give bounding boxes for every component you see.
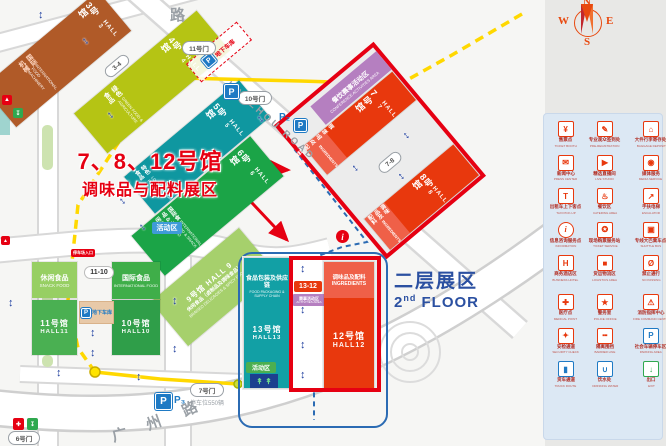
legend-item: P社会车辆停车区PARKING AREA (627, 328, 666, 355)
legend-label-en: TICKET SERVICE (593, 245, 618, 248)
compass-e: E (606, 15, 613, 27)
parking-p3-label: P₃ (174, 395, 185, 406)
legend-label-en: PARKING AREA (640, 351, 662, 354)
legend-icon: ⚠ (643, 294, 659, 310)
direction-arrow: ↕ (136, 372, 142, 383)
legend-label-en: MEDICAL POINT (554, 317, 577, 320)
legend-label-en: PRESS CENTER (554, 178, 577, 181)
legend-icon: ▶ (597, 155, 613, 171)
legend-icon: ∪ (597, 361, 613, 377)
parking-icon-p2: P (294, 119, 307, 132)
legend-item: T出租车上下客点TAXI PICK-UP (548, 188, 583, 215)
legend-icon: ◉ (643, 155, 659, 171)
legend-item: ■货运物流区LOGISTICS AREA (585, 255, 624, 287)
legend-label-en: FIRE COMMAND CENTER (633, 317, 666, 320)
legend-panel: ¥售票点TICKET BOOTH✎专业观众签到处PRE-REGISTRATION… (543, 113, 663, 440)
legend-label-en: LOGISTICS AREA (592, 278, 617, 281)
compass-w: W (558, 15, 569, 27)
legend-label-en: TRUCK ROUTE (555, 384, 577, 387)
legend-item: Ø禁止通行NO PASSING (627, 255, 666, 287)
legend-icon: ↗ (643, 188, 659, 204)
legend-label-cn: 禁止通行 (642, 272, 660, 277)
direction-arrow: ↕ (56, 368, 62, 379)
direction-arrow: ↕ (90, 348, 96, 359)
parking-p2-label: P₂ (279, 112, 290, 123)
exit-icon: ↧ (27, 418, 38, 430)
legend-icon: ♨ (597, 188, 613, 204)
gate-6: 6号门 (8, 431, 40, 445)
legend-item: ↗手扶电梯ESCALATOR (627, 188, 666, 215)
underground-parking-block: P 地下车库 (79, 301, 114, 324)
legend-item: ▮货车通道TRUCK ROUTE (548, 361, 583, 388)
underground-parking-label2: 地下车库 (92, 309, 112, 316)
legend-label-cn: 货车通道 (557, 378, 575, 383)
legend-label-en: TICKET BOOTH (555, 144, 577, 147)
legend-label-cn: 手扶电梯 (642, 205, 660, 210)
map-canvas: 国际机械 INTERNATIONAL FOOD MACHINERY 3号馆 HA… (0, 0, 545, 446)
legend-item: ⚠消防指挥中心FIRE COMMAND CENTER (627, 294, 666, 321)
legend-label-en: BAGGAGE DEPOSIT (636, 144, 665, 147)
zone-title-line2: 调味品与配料展区 (60, 176, 240, 200)
parking-p3-note: 停车位550辆 (190, 398, 224, 407)
legend-label-cn: 医疗点 (559, 311, 573, 316)
international-food-en: INTERNATIONAL FOOD (114, 283, 158, 288)
legend-label-cn: 消防指挥中心 (637, 311, 664, 316)
entrance-canopy: ↟ ↟ (250, 374, 278, 388)
direction-arrow: ↕ (8, 298, 14, 309)
legend-label-en: BUSINESS HOTEL (553, 278, 579, 281)
legend-label-cn: 警务室 (598, 311, 612, 316)
legend-item: H商务酒店区BUSINESS HOTEL (548, 255, 583, 287)
snack-food-en: SNACK FOOD (40, 283, 70, 288)
hall-11-name: 11号馆 (40, 320, 68, 329)
legend-label-en: INFORMATION (555, 245, 576, 248)
legend-item: ▣专线大巴乘车点SHUTTLE BUS (627, 222, 666, 249)
legend-icon: ▮ (558, 361, 574, 377)
hall-13-name: 13号馆 (253, 326, 282, 335)
legend-label-cn: 商务酒店区 (554, 272, 577, 277)
legend-icon: i (558, 222, 574, 238)
activity-area-badge-blue: 活动区 (152, 222, 182, 234)
legend-icon: ✚ (558, 294, 574, 310)
hall-13-code: HALL13 (253, 335, 282, 341)
direction-arrow: ↕ (396, 171, 407, 183)
legend-item: ♨餐饮区CATERING AREA (585, 188, 624, 215)
legend-icon: ✉ (558, 155, 574, 171)
direction-arrow: ↕ (401, 130, 412, 142)
legend-item: ⌂大件行李寄存处BAGGAGE DEPOSIT (627, 121, 666, 148)
legend-icon: ■ (597, 255, 613, 271)
parking-icon-p3: P (155, 393, 172, 410)
legend-label-en: BARRIER LINE (594, 351, 615, 354)
hall-13-category-en: FOOD PACKAGING & SUPPLY CHAIN (244, 290, 290, 298)
legend-item: ✚医疗点MEDICAL POINT (548, 294, 583, 321)
exit-icon: ▲ (2, 95, 12, 105)
activity-area-badge-green: 活动区 (246, 362, 276, 373)
legend-label-cn: 大件行李寄存处 (635, 138, 666, 143)
legend-label-en: SHUTTLE BUS (641, 245, 662, 248)
hall-13-category: 食品包装及供应链 (244, 276, 290, 290)
gate-11-10: 11-10 (84, 266, 114, 279)
legend-label-en: CATERING AREA (593, 211, 617, 214)
second-floor-cn: 二层展区 (394, 266, 479, 293)
legend-item: ★警务室POLICE OFFICE (585, 294, 624, 321)
legend-label-cn: 专业观众签到处 (589, 138, 621, 143)
direction-arrow: ↕ (350, 162, 361, 174)
hall-11-code: HALL11 (40, 329, 68, 335)
hall-10: 10号馆 HALL10 (112, 300, 160, 355)
legend-icon: ¥ (558, 121, 574, 137)
legend-item: ↓出口EXIT (627, 361, 666, 388)
legend-icon: ✪ (597, 222, 613, 238)
legend-item: ✪现场购票服务站TICKET SERVICE (585, 222, 624, 249)
direction-arrow: ↕ (90, 328, 96, 339)
hall-10-name: 10号馆 (122, 320, 151, 329)
direction-arrow: ↕ (172, 296, 178, 307)
legend-label-en: TAXI PICK-UP (556, 211, 575, 214)
legend-label-en: POLICE OFFICE (593, 317, 616, 320)
legend-icon: Ø (643, 255, 659, 271)
legend-item: ◉媒体服务MEDIA SERVICE (627, 155, 666, 182)
legend-icon: P (643, 328, 659, 344)
legend-label-en: EXIT (648, 384, 655, 387)
compass-s: S (584, 36, 590, 48)
compass-n: N (583, 0, 591, 8)
legend-icon: ✎ (597, 121, 613, 137)
gate-10: 10号门 (238, 91, 272, 105)
gate-7: 7号门 (190, 383, 224, 397)
legend-label-en: PRE-REGISTRATION (590, 144, 619, 147)
international-food-block: 国际食品 INTERNATIONAL FOOD (112, 262, 160, 299)
legend-item: ╍隔离围挡BARRIER LINE (585, 328, 624, 355)
snack-food-cn: 休闲食品 (41, 273, 69, 283)
zone-title: 7、8、12号馆 调味品与配料展区 (60, 144, 240, 200)
zone-title-line1: 7、8、12号馆 (60, 144, 240, 176)
legend-label-cn: 餐饮区 (598, 205, 612, 210)
legend-icon: T (558, 188, 574, 204)
legend-item: ✦安检通道SECURITY CHECK (548, 328, 583, 355)
second-floor-en: 2nd FLOOR (394, 293, 479, 311)
legend-icon: ★ (597, 294, 613, 310)
legend-label-en: MEDIA SERVICE (639, 178, 662, 181)
legend-item: i信息咨询服务点INFORMATION (548, 222, 583, 249)
direction-arrow: ↕ (38, 10, 44, 21)
legend-icon: ✦ (558, 328, 574, 344)
legend-label-en: DRINKING WATER (592, 384, 618, 387)
legend-grid: ¥售票点TICKET BOOTH✎专业观众签到处PRE-REGISTRATION… (548, 121, 658, 388)
legend-icon: ⌂ (643, 121, 659, 137)
legend-label-cn: 售票点 (559, 138, 573, 143)
road-name-top: 路 (170, 4, 185, 25)
hall-10-code: HALL10 (122, 329, 151, 335)
parking-icon-p1: P (224, 84, 239, 99)
compass: N W E S (552, 0, 622, 52)
legend-icon: ╍ (597, 328, 613, 344)
legend-label-en: ESCALATOR (642, 211, 660, 214)
snack-food-block: 休闲食品 SNACK FOOD (32, 262, 77, 298)
legend-icon: ↓ (643, 361, 659, 377)
exit-icon: ✚ (13, 418, 24, 430)
legend-label-cn: 出口 (646, 378, 655, 383)
legend-label-en: NO PASSING (642, 278, 660, 281)
parking-icon: P (81, 308, 91, 318)
direction-arrow: ↕ (172, 344, 178, 355)
legend-icon: H (558, 255, 574, 271)
second-floor-label: 二层展区 2nd FLOOR (394, 266, 479, 311)
legend-label-en: SECURITY CHECK (552, 351, 578, 354)
legend-icon: ▣ (643, 222, 659, 238)
halls-12-13-highlight-rect (289, 256, 381, 392)
information-icon: i (336, 230, 349, 243)
legend-item: ▶精选直播间LIVE STUDIO (585, 155, 624, 182)
venue-map-page: 国际机械 INTERNATIONAL FOOD MACHINERY 3号馆 HA… (0, 0, 666, 446)
parking-entrance-badge: 停车场入口 (71, 249, 95, 257)
exit-icon: ▲ (1, 236, 10, 245)
legend-item: ∪饮水处DRINKING WATER (585, 361, 624, 388)
legend-label-cn: 出租车上下客点 (550, 205, 582, 210)
legend-item: ¥售票点TICKET BOOTH (548, 121, 583, 148)
international-food-cn: 国际食品 (122, 273, 150, 283)
legend-label-cn: 饮水处 (598, 378, 612, 383)
legend-item: ✉新闻中心PRESS CENTER (548, 155, 583, 182)
exit-icon: ↧ (13, 108, 23, 118)
hall-11: 11号馆 HALL11 (32, 300, 77, 355)
legend-label-cn: 货运物流区 (594, 272, 617, 277)
legend-label-en: LIVE STUDIO (596, 178, 615, 181)
legend-item: ✎专业观众签到处PRE-REGISTRATION (585, 121, 624, 148)
gate-11: 11号门 (182, 41, 216, 55)
